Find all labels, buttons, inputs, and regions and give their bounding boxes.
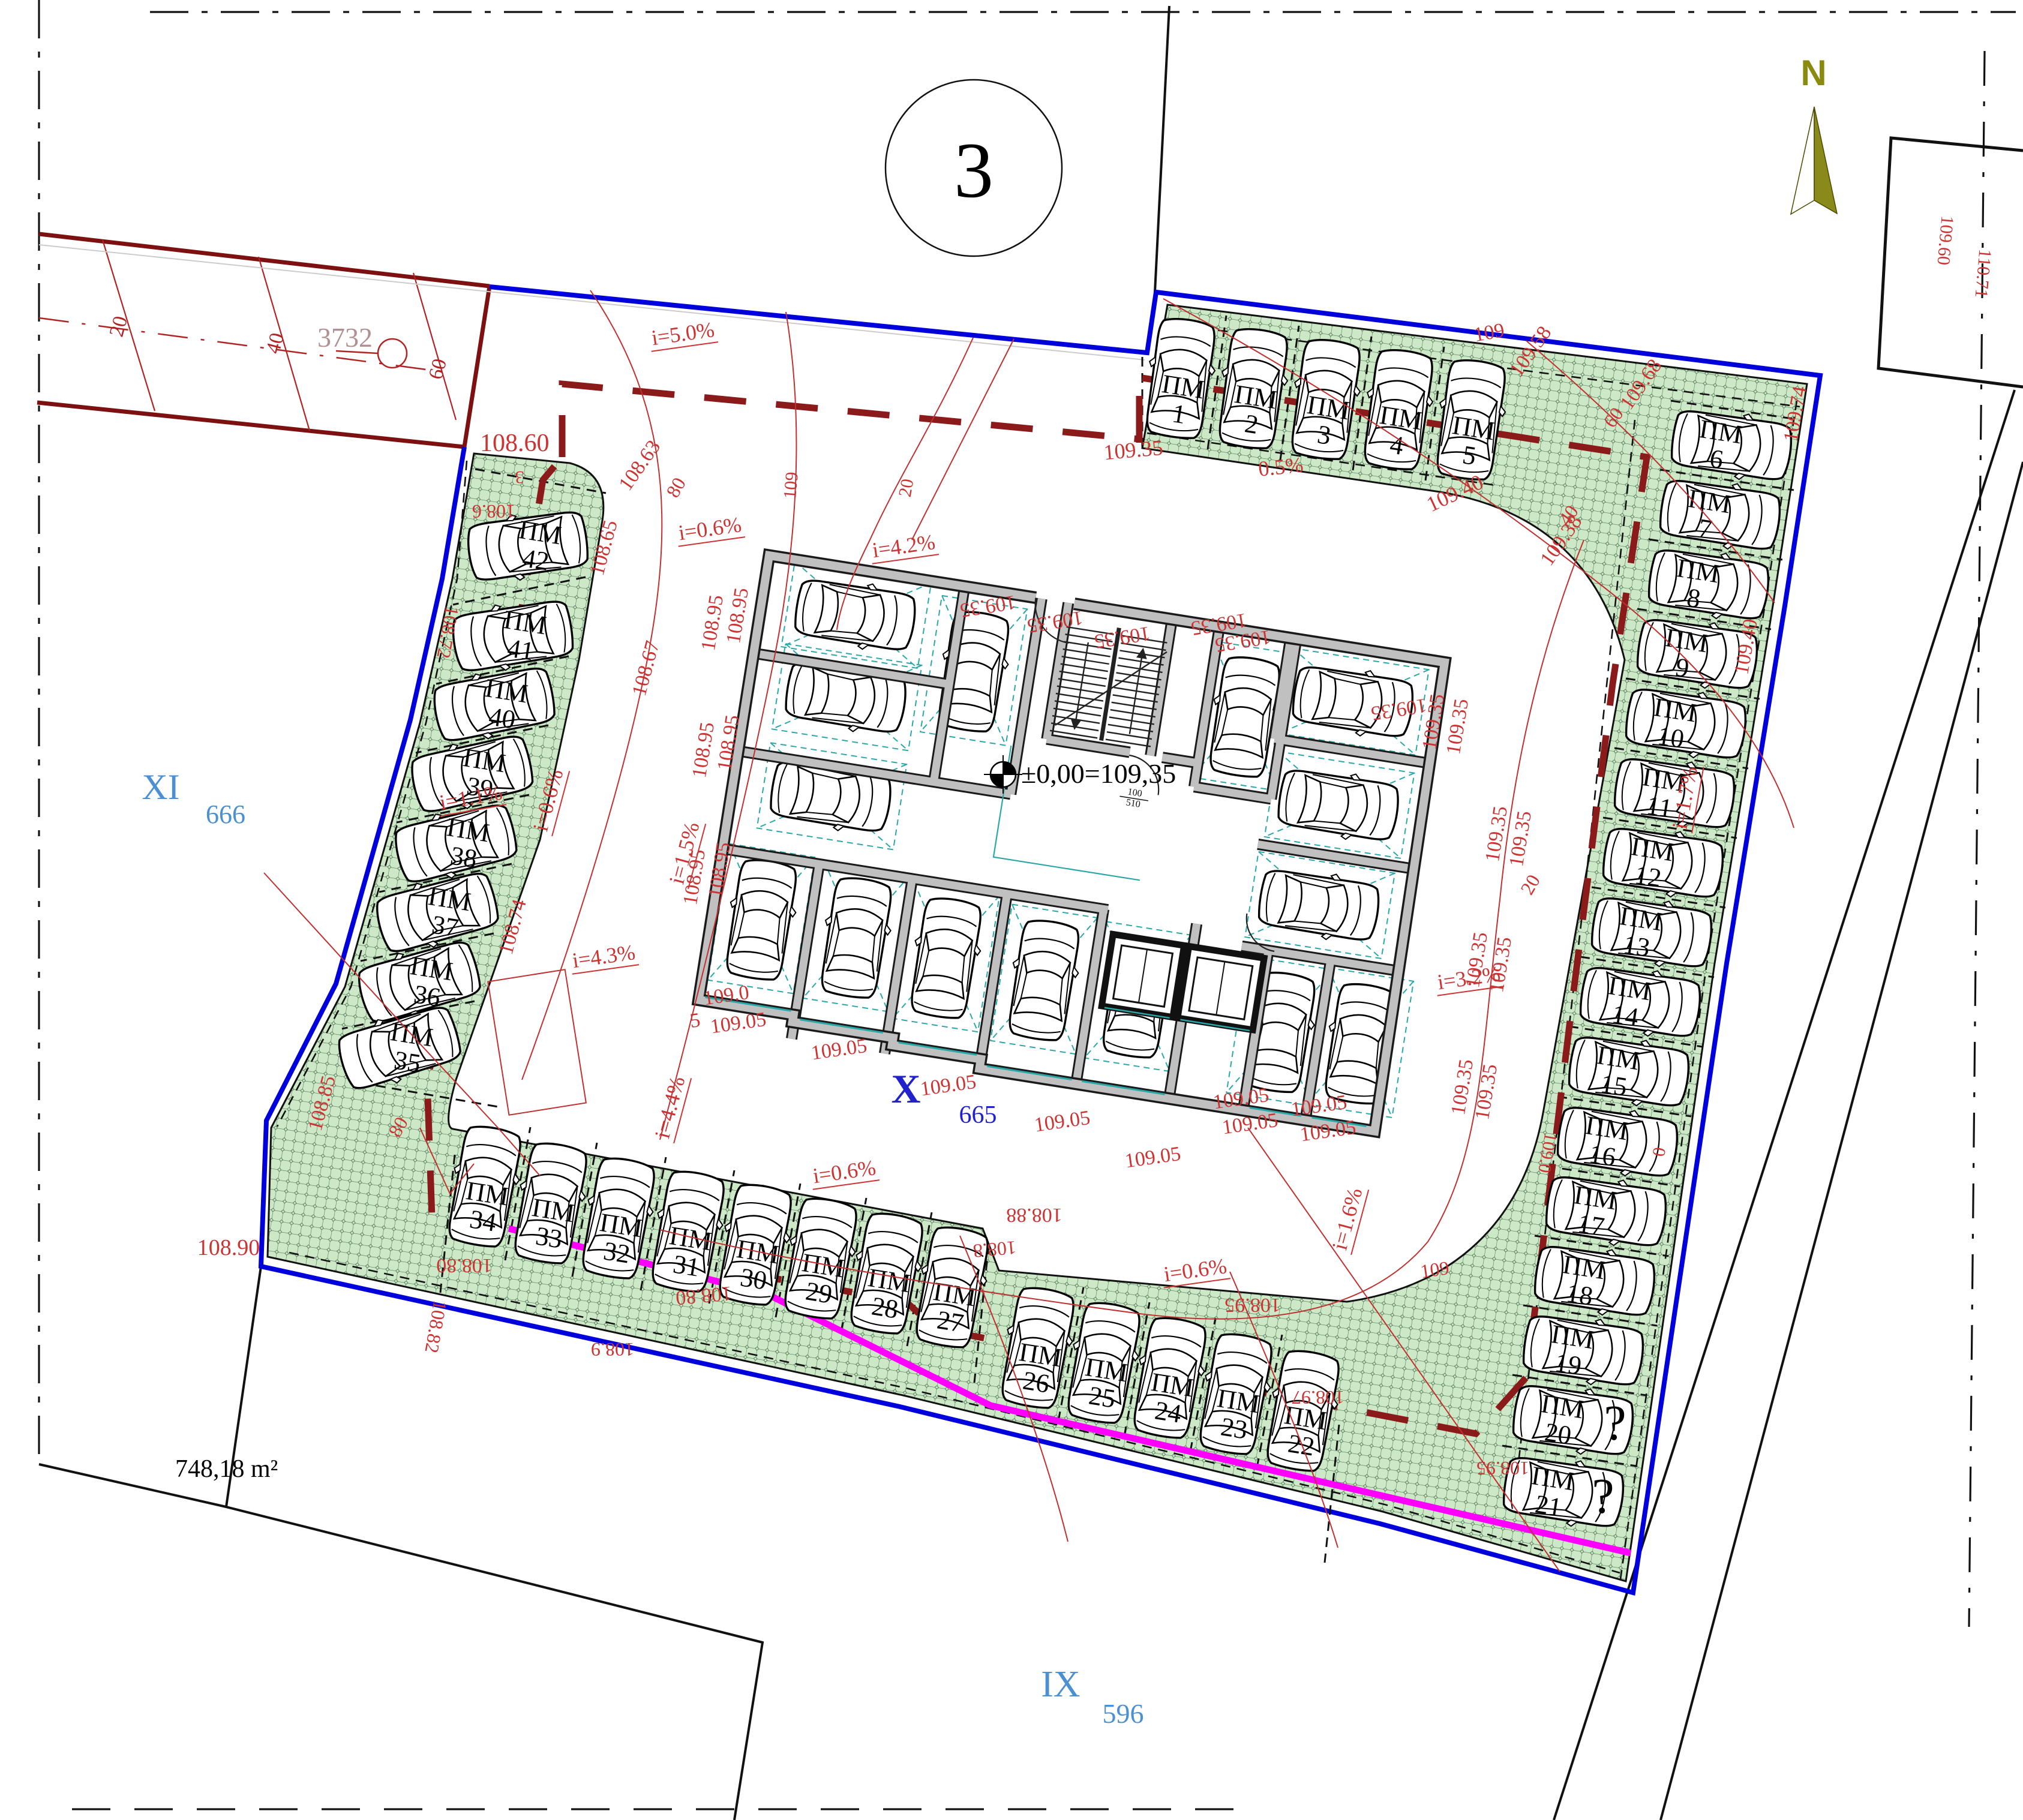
svg-text:108.9: 108.9 <box>591 1339 634 1361</box>
svg-text:13: 13 <box>1622 929 1652 962</box>
svg-text:14: 14 <box>1610 999 1641 1032</box>
svg-text:IX: IX <box>1041 1664 1080 1705</box>
svg-text:25: 25 <box>1087 1380 1118 1413</box>
svg-text:108.90: 108.90 <box>197 1235 260 1260</box>
svg-text:3: 3 <box>515 467 524 487</box>
svg-text:16: 16 <box>1587 1139 1618 1172</box>
svg-text:21: 21 <box>1533 1489 1564 1522</box>
svg-text:34: 34 <box>468 1204 499 1237</box>
svg-text:0.5%: 0.5% <box>1257 452 1304 481</box>
svg-text:29: 29 <box>804 1276 835 1309</box>
svg-text:28: 28 <box>870 1291 901 1324</box>
svg-text:37: 37 <box>430 909 461 942</box>
svg-text:17: 17 <box>1576 1208 1607 1241</box>
svg-text:15: 15 <box>1599 1068 1629 1101</box>
svg-text:27: 27 <box>935 1305 966 1338</box>
svg-text:748,18 m²: 748,18 m² <box>175 1455 278 1483</box>
svg-text:19: 19 <box>1553 1347 1584 1380</box>
svg-text:3732: 3732 <box>317 322 373 353</box>
svg-text:110.71: 110.71 <box>1971 248 1995 299</box>
svg-text:109: 109 <box>1419 1257 1451 1282</box>
svg-text:666: 666 <box>206 800 245 829</box>
svg-text:3: 3 <box>954 126 994 214</box>
svg-text:?: ? <box>1604 1395 1626 1451</box>
svg-text:32: 32 <box>602 1236 632 1269</box>
svg-text:109: 109 <box>780 471 802 500</box>
svg-text:23: 23 <box>1219 1411 1250 1444</box>
svg-text:20: 20 <box>1543 1417 1574 1450</box>
svg-text:12: 12 <box>1633 860 1664 893</box>
svg-text:108.8: 108.8 <box>973 1237 1017 1262</box>
svg-text:40: 40 <box>487 701 518 734</box>
svg-text:X: X <box>891 1066 920 1112</box>
svg-text:108.95: 108.95 <box>1224 1294 1281 1316</box>
svg-text:108.60: 108.60 <box>480 430 550 457</box>
svg-text:108.97: 108.97 <box>1292 1387 1344 1408</box>
svg-text:24: 24 <box>1153 1395 1184 1428</box>
svg-text:108.80: 108.80 <box>436 1254 493 1277</box>
svg-text:35: 35 <box>392 1045 423 1078</box>
svg-text:XI: XI <box>142 767 179 807</box>
svg-text:30: 30 <box>739 1262 769 1295</box>
svg-text:108.88: 108.88 <box>1006 1204 1062 1226</box>
svg-text:665: 665 <box>959 1101 997 1129</box>
svg-text:108.95: 108.95 <box>1476 1458 1529 1479</box>
svg-text:20: 20 <box>895 477 918 498</box>
svg-text:31: 31 <box>671 1249 702 1282</box>
svg-text:10: 10 <box>1656 720 1686 753</box>
svg-text:41: 41 <box>506 633 536 666</box>
svg-text:?: ? <box>1592 1468 1614 1524</box>
svg-text:42: 42 <box>521 543 551 576</box>
svg-text:22: 22 <box>1286 1428 1317 1461</box>
svg-text:33: 33 <box>534 1221 565 1254</box>
svg-text:38: 38 <box>449 840 479 873</box>
svg-text:108.6: 108.6 <box>472 501 515 522</box>
svg-text:596: 596 <box>1103 1698 1144 1729</box>
svg-text:±0,00=109,35: ±0,00=109,35 <box>1021 758 1176 789</box>
svg-text:18: 18 <box>1565 1278 1595 1311</box>
svg-text:N: N <box>1800 53 1826 93</box>
svg-text:26: 26 <box>1021 1365 1052 1398</box>
